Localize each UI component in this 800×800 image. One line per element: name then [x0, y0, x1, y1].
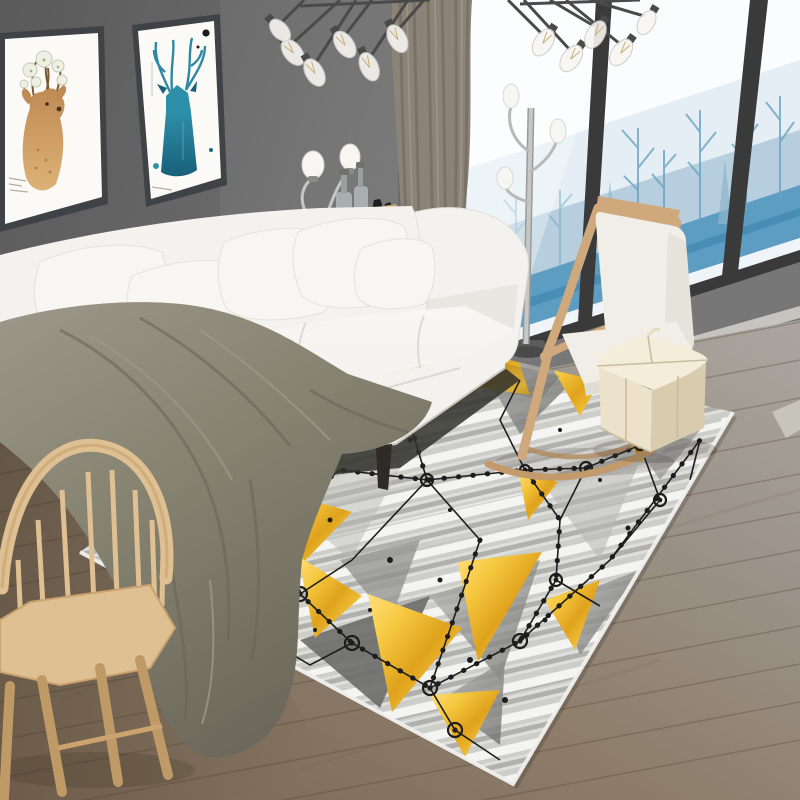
scene-canvas [0, 0, 800, 800]
table-lamp-bulb [302, 151, 324, 179]
throw-pillow [355, 239, 435, 309]
deer-nose [57, 107, 62, 112]
living-room-photo [0, 0, 800, 800]
deer-eye [45, 102, 49, 106]
wall-art-teal-deer [132, 14, 227, 207]
teal-deer-neck [161, 112, 197, 176]
wall-art-watercolor-deer [0, 26, 108, 232]
